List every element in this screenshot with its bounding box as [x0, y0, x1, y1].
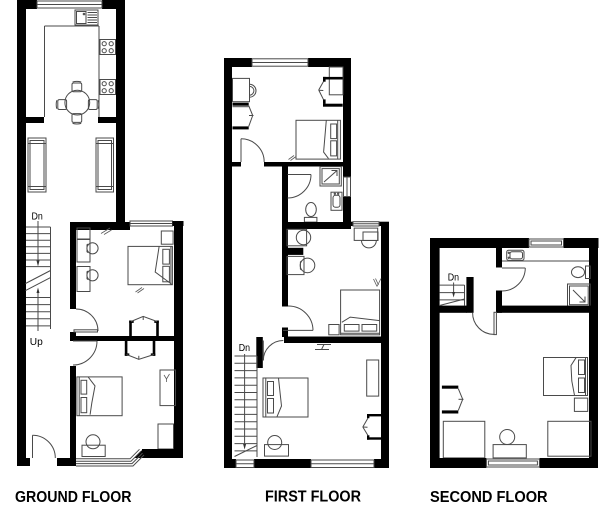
svg-text:Dn: Dn: [448, 272, 459, 283]
svg-text:SECOND FLOOR: SECOND FLOOR: [430, 489, 548, 506]
svg-text:Up: Up: [30, 337, 43, 348]
svg-text:GROUND FLOOR: GROUND FLOOR: [15, 489, 132, 506]
svg-text:Dn: Dn: [239, 343, 250, 354]
svg-text:Dn: Dn: [32, 212, 43, 223]
svg-text:FIRST FLOOR: FIRST FLOOR: [265, 489, 361, 506]
